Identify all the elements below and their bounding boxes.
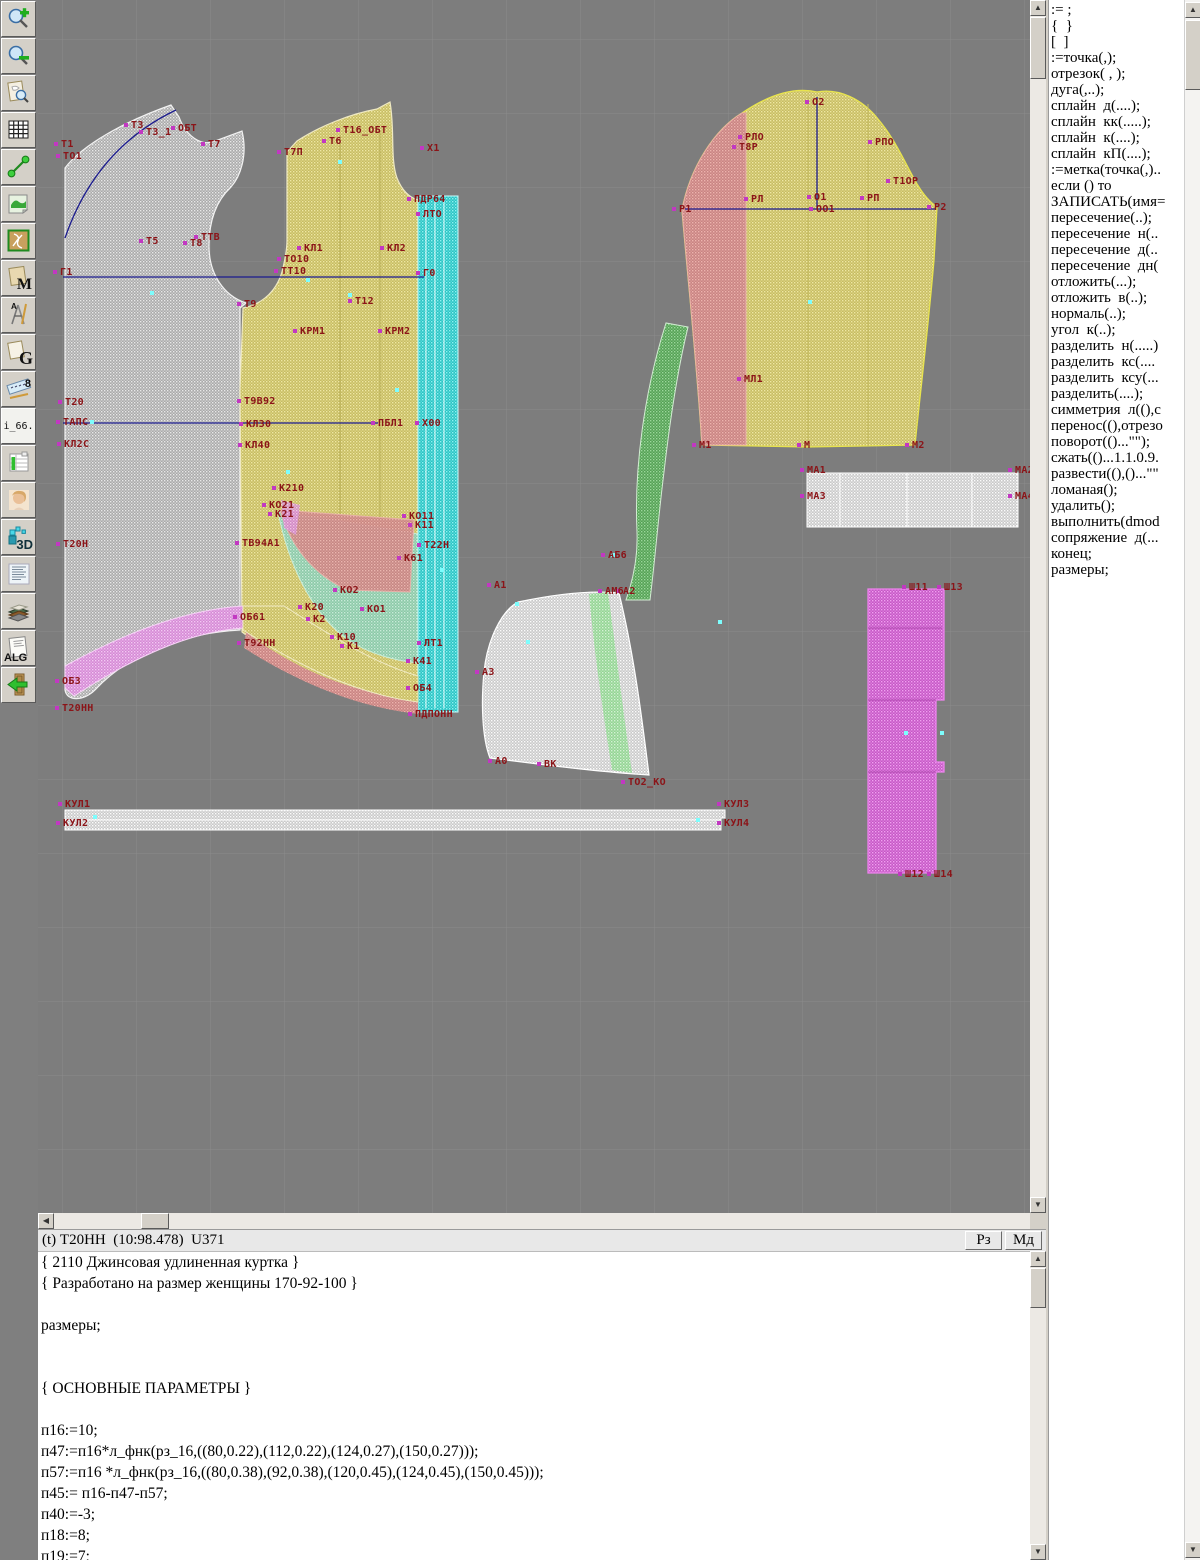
canvas-hscrollbar[interactable]: ◀	[38, 1213, 1030, 1229]
canvas-label: Ш14	[934, 869, 953, 880]
canvas-label: КУЛ3	[724, 799, 749, 810]
canvas-label: К21	[275, 509, 294, 520]
command-item[interactable]: := ;	[1051, 2, 1183, 18]
point-marker	[378, 329, 382, 333]
snap-marker	[904, 731, 908, 735]
canvas-label: К1	[347, 641, 360, 652]
canvas-label: ТАПС	[63, 417, 88, 428]
command-item[interactable]: развести((),()...""	[1051, 466, 1183, 482]
point-marker	[139, 239, 143, 243]
zoom-in-button[interactable]	[1, 1, 36, 37]
command-item[interactable]: сплайн д(....);	[1051, 98, 1183, 114]
point-marker	[268, 512, 272, 516]
point-marker	[860, 196, 864, 200]
canvas-label: ВК	[544, 759, 557, 770]
editor-line: п40:=-3;	[38, 1504, 1030, 1525]
text-list-button[interactable]	[1, 556, 36, 592]
point-marker	[56, 821, 60, 825]
point-marker	[407, 197, 411, 201]
status-text: (t) Т20НН (10:98.478) U371	[42, 1232, 224, 1249]
canvas-label: Р2	[934, 202, 947, 213]
point-marker	[537, 762, 541, 766]
point-marker	[868, 140, 872, 144]
canvas-label: КУЛ1	[65, 799, 90, 810]
point-marker	[55, 679, 59, 683]
point-marker	[408, 712, 412, 716]
command-item[interactable]: удалить();	[1051, 498, 1183, 514]
scroll-left-button[interactable]: ◀	[38, 1213, 54, 1229]
canvas-label: Т7П	[284, 147, 303, 158]
canvas-label: ЛТ1	[424, 638, 443, 649]
point-marker	[800, 494, 804, 498]
canvas-label: Т9В92	[244, 396, 276, 407]
command-item[interactable]: размеры;	[1051, 562, 1183, 578]
command-item[interactable]: пересечение н(..	[1051, 226, 1183, 242]
point-marker	[124, 123, 128, 127]
canvas-label: РЛ	[751, 194, 764, 205]
snap-marker	[93, 815, 97, 819]
point-marker	[397, 556, 401, 560]
point-marker	[371, 421, 375, 425]
canvas-label: РП	[867, 193, 880, 204]
point-marker	[800, 468, 804, 472]
g-document-button[interactable]: G	[1, 334, 36, 370]
editor-line: размеры;	[38, 1315, 1030, 1336]
command-item[interactable]: ломаная();	[1051, 482, 1183, 498]
snap-marker	[150, 291, 154, 295]
toolbar: M A G 8 i_66. 3D	[0, 0, 38, 703]
editor-line	[38, 1294, 1030, 1315]
canvas-label: Х1	[427, 143, 440, 154]
canvas-label: Т9	[244, 299, 257, 310]
point-marker	[406, 686, 410, 690]
point-marker	[886, 179, 890, 183]
canvas-hscroll-thumb[interactable]	[141, 1213, 169, 1229]
canvas-label: ОО1	[816, 204, 835, 215]
command-item[interactable]: сплайн кк(.....);	[1051, 114, 1183, 130]
canvas-label: Ш12	[905, 869, 924, 880]
command-item[interactable]: пересечение дн(	[1051, 258, 1183, 274]
point-marker	[306, 617, 310, 621]
command-item[interactable]: сжать(()...1.1.0.9.	[1051, 450, 1183, 466]
image-button[interactable]	[1, 186, 36, 222]
point-marker	[262, 503, 266, 507]
m-letter: M	[17, 276, 32, 294]
command-item[interactable]: { }	[1051, 18, 1183, 34]
editor-scroll-down-button[interactable]: ▼	[1030, 1544, 1046, 1560]
point-marker	[54, 142, 58, 146]
snap-marker	[395, 388, 399, 392]
i66-label: i_66.	[3, 421, 33, 432]
point-marker	[293, 329, 297, 333]
canvas-label: К11	[415, 520, 434, 531]
canvas-label: Т12	[355, 296, 374, 307]
canvas-label: ОБ61	[240, 612, 265, 623]
editor-line: { 2110 Джинсовая удлиненная куртка }	[38, 1252, 1030, 1273]
command-item[interactable]: перенос((),отрезо	[1051, 418, 1183, 434]
point-marker	[717, 802, 721, 806]
canvas-label: Т20	[65, 397, 84, 408]
point-marker	[417, 641, 421, 645]
alg-button[interactable]: ALG	[1, 630, 36, 666]
point-marker	[598, 589, 602, 593]
point-marker	[937, 585, 941, 589]
md-button[interactable]: Мд	[1005, 1231, 1042, 1250]
command-item[interactable]: разделить кс(....	[1051, 354, 1183, 370]
snap-marker	[440, 568, 444, 572]
canvas-label: Т22Н	[424, 540, 449, 551]
command-item[interactable]: разделить(....);	[1051, 386, 1183, 402]
threed-button[interactable]: 3D	[1, 519, 36, 555]
portrait-button[interactable]	[1, 482, 36, 518]
editor-line: { ОСНОВНЫЕ ПАРАМЕТРЫ }	[38, 1378, 1030, 1399]
ruler-button[interactable]: 8	[1, 371, 36, 407]
threed-label: 3D	[16, 537, 33, 552]
panel-scroll-down-button[interactable]: ▼	[1185, 1542, 1200, 1558]
canvas-label: КУЛ2	[63, 818, 88, 829]
a-letter: A	[11, 302, 17, 311]
point-marker	[488, 759, 492, 763]
snap-marker	[515, 602, 519, 606]
cuff-band[interactable]	[807, 473, 1018, 527]
point-marker	[737, 377, 741, 381]
command-item[interactable]: разделить н(.....)	[1051, 338, 1183, 354]
canvas-label: Т16_ОБТ	[343, 125, 387, 136]
point-marker	[402, 514, 406, 518]
canvas-label: Т20НН	[62, 703, 94, 714]
canvas-label: КРМ1	[300, 326, 325, 337]
canvas-label: КРМ2	[385, 326, 410, 337]
point-marker	[487, 583, 491, 587]
point-marker	[732, 145, 736, 149]
point-marker	[797, 443, 801, 447]
command-item[interactable]: конец;	[1051, 546, 1183, 562]
point-marker	[233, 615, 237, 619]
point-marker	[58, 802, 62, 806]
point-marker	[621, 780, 625, 784]
point-marker	[905, 443, 909, 447]
point-marker	[322, 139, 326, 143]
point-marker	[360, 607, 364, 611]
snap-marker	[338, 160, 342, 164]
point-marker	[272, 486, 276, 490]
command-item[interactable]: если () то	[1051, 178, 1183, 194]
canvas-label: Ш11	[909, 582, 928, 593]
editor-line	[38, 1336, 1030, 1357]
command-item[interactable]: симметрия л((),с	[1051, 402, 1183, 418]
canvas-label: К41	[413, 656, 432, 667]
canvas-label: ЛТО	[423, 209, 442, 220]
canvas-label: МА1	[807, 465, 826, 476]
editor-vscroll-thumb[interactable]	[1030, 1268, 1046, 1308]
canvas-label: Т3_1	[146, 127, 171, 138]
snap-marker	[286, 470, 290, 474]
command-item[interactable]: сопряжение д(...	[1051, 530, 1183, 546]
point-marker	[237, 399, 241, 403]
command-item[interactable]: выполнить(dmod	[1051, 514, 1183, 530]
command-item[interactable]: :=метка(точка(,)..	[1051, 162, 1183, 178]
canvas-label: А3	[482, 667, 495, 678]
command-item[interactable]: угол к(..);	[1051, 322, 1183, 338]
point-marker	[1008, 494, 1012, 498]
point-marker	[805, 100, 809, 104]
point-marker	[53, 270, 57, 274]
point-marker	[171, 126, 175, 130]
canvas-label: АБ6	[608, 550, 627, 561]
point-marker	[417, 543, 421, 547]
canvas-label: К210	[279, 483, 304, 494]
point-marker	[55, 706, 59, 710]
eight-digit: 8	[25, 378, 31, 390]
command-item[interactable]: пересечение д(..	[1051, 242, 1183, 258]
canvas-label: КУЛ4	[724, 818, 749, 829]
canvas-label: ПДПОНН	[415, 709, 453, 720]
snap-marker	[526, 640, 530, 644]
canvas-label: М2	[912, 440, 925, 451]
zoom-out-button[interactable]	[1, 38, 36, 74]
point-marker	[420, 146, 424, 150]
drafting-button[interactable]: A	[1, 297, 36, 333]
canvas-vscrollbar[interactable]: ▲ ▼	[1030, 0, 1046, 1213]
point-marker	[692, 443, 696, 447]
point-marker	[416, 271, 420, 275]
editor-line: п16:=10;	[38, 1420, 1030, 1441]
point-marker	[380, 246, 384, 250]
scroll-down-button[interactable]: ▼	[1030, 1197, 1046, 1213]
point-marker	[348, 299, 352, 303]
canvas-label: МА2	[1015, 465, 1030, 476]
command-item[interactable]: дуга(,..);	[1051, 82, 1183, 98]
point-marker	[56, 542, 60, 546]
program-editor[interactable]: { 2110 Джинсовая удлиненная куртка }{ Ра…	[38, 1251, 1030, 1560]
point-marker	[601, 553, 605, 557]
command-item[interactable]: сплайн кП(....);	[1051, 146, 1183, 162]
editor-line	[38, 1399, 1030, 1420]
status-bar: (t) Т20НН (10:98.478) U371 Рз Мд	[38, 1229, 1046, 1252]
canvas-label: Т8Р	[739, 142, 758, 153]
point-marker	[56, 420, 60, 424]
point-marker	[807, 195, 811, 199]
canvas-label: Х00	[422, 418, 441, 429]
books-button[interactable]	[1, 593, 36, 629]
command-panel-scrollbar[interactable]: ▲ ▼	[1184, 0, 1200, 1560]
canvas-label: КЛ30	[246, 419, 271, 430]
point-marker	[237, 302, 241, 306]
canvas-label: ТО2_КО	[628, 777, 666, 788]
canvas-label: Т1	[61, 139, 74, 150]
canvas-label: Т92НН	[244, 638, 276, 649]
command-item[interactable]: сплайн к(....);	[1051, 130, 1183, 146]
point-marker	[336, 128, 340, 132]
point-marker	[1008, 468, 1012, 472]
canvas-label: К20	[305, 602, 324, 613]
point-marker	[416, 212, 420, 216]
exit-button[interactable]	[1, 667, 36, 703]
editor-scroll-up-button[interactable]: ▲	[1030, 1251, 1046, 1267]
rz-button[interactable]: Рз	[965, 1231, 1002, 1250]
canvas-label: КО1	[367, 604, 386, 615]
canvas-label: МА3	[807, 491, 826, 502]
point-marker	[744, 197, 748, 201]
point-marker	[277, 150, 281, 154]
point-marker	[406, 659, 410, 663]
command-item[interactable]: :=точка(,);	[1051, 50, 1183, 66]
point-marker	[898, 872, 902, 876]
canvas-label: Т1ОР	[893, 176, 918, 187]
snap-marker	[808, 300, 812, 304]
point-marker	[408, 523, 412, 527]
canvas-label: МЛ1	[744, 374, 763, 385]
g-letter: G	[19, 348, 33, 369]
alg-label: ALG	[4, 652, 27, 664]
canvas-label: КЛ40	[245, 440, 270, 451]
canvas-label: О1	[814, 192, 827, 203]
point-marker	[738, 135, 742, 139]
measure-button[interactable]	[1, 149, 36, 185]
canvas-label: ОБ4	[413, 683, 432, 694]
canvas-label: ТТВ	[201, 232, 220, 243]
canvas-label: А2	[623, 586, 636, 597]
editor-line: п57:=п16 *л_фнк(рз_16,((80,0.38),(92,0.3…	[38, 1462, 1030, 1483]
snap-marker	[306, 278, 310, 282]
point-marker	[333, 588, 337, 592]
editor-line: п47:=п16*л_фнк(рз_16,((80,0.22),(112,0.2…	[38, 1441, 1030, 1462]
point-marker	[297, 246, 301, 250]
point-marker	[475, 670, 479, 674]
command-panel: := ;{ }[ ]:=точка(,);отрезок( , );дуга(,…	[1048, 0, 1200, 1560]
snap-marker	[696, 818, 700, 822]
canvas-label: РПО	[875, 137, 894, 148]
point-marker	[237, 641, 241, 645]
canvas-label: О2	[812, 97, 825, 108]
editor-line	[38, 1357, 1030, 1378]
snap-marker	[940, 731, 944, 735]
point-marker	[927, 872, 931, 876]
point-marker	[809, 207, 813, 211]
canvas-label: Т7	[208, 139, 221, 150]
command-item[interactable]: разделить ксу(...	[1051, 370, 1183, 386]
snap-marker	[90, 420, 94, 424]
pattern-canvas[interactable]: Т1ТО1Т3Т3_1ОБТТ7Т5Т8ТТВГ1Т9Т7ПТ6Т16_ОБТХ…	[38, 0, 1030, 1213]
canvas-label: А1	[494, 580, 507, 591]
canvas-label: АМ6	[605, 586, 624, 597]
point-marker	[183, 241, 187, 245]
editor-line: п18:=8;	[38, 1525, 1030, 1546]
command-item[interactable]: отложить в(..);	[1051, 290, 1183, 306]
canvas-label: ТО1	[63, 151, 82, 162]
canvas-label: ТТ10	[281, 266, 306, 277]
canvas-label: Г0	[423, 268, 436, 279]
canvas-label: МА4	[1015, 491, 1030, 502]
canvas-label: ПДР64	[414, 194, 446, 205]
point-marker	[277, 257, 281, 261]
snap-marker	[348, 293, 352, 297]
scroll-up-button[interactable]: ▲	[1030, 0, 1046, 16]
canvas-label: К2	[313, 614, 326, 625]
editor-line: { Разработано на размер женщины 170-92-1…	[38, 1273, 1030, 1294]
command-item[interactable]: поворот(()..."");	[1051, 434, 1183, 450]
canvas-label: Г1	[60, 267, 73, 278]
editor-vscrollbar[interactable]: ▲ ▼	[1030, 1251, 1046, 1560]
scrollbar-corner	[1030, 1213, 1046, 1229]
point-marker	[415, 421, 419, 425]
command-item[interactable]: [ ]	[1051, 34, 1183, 50]
point-marker	[298, 605, 302, 609]
canvas-label: ТВ94А1	[242, 538, 280, 549]
point-marker	[57, 442, 61, 446]
canvas-label: М1	[699, 440, 712, 451]
canvas-label: Т20Н	[63, 539, 88, 550]
canvas-label: Т5	[146, 236, 159, 247]
snap-marker	[718, 620, 722, 624]
canvas-label: А0	[495, 756, 508, 767]
point-marker	[340, 644, 344, 648]
command-item[interactable]: пересечение(..);	[1051, 210, 1183, 226]
point-marker	[235, 541, 239, 545]
m-document-button[interactable]: M	[1, 260, 36, 296]
point-marker	[717, 821, 721, 825]
canvas-label: КЛ1	[304, 243, 323, 254]
editor-line: п19:=7;	[38, 1546, 1030, 1560]
command-list: := ;{ }[ ]:=точка(,);отрезок( , );дуга(,…	[1051, 2, 1183, 578]
point-marker	[56, 154, 60, 158]
canvas-label: Р1	[679, 204, 692, 215]
canvas-label: М	[804, 440, 810, 451]
canvas-label: Т3	[131, 120, 144, 131]
canvas-label: ПБЛ1	[378, 418, 403, 429]
panel-scroll-up-button[interactable]: ▲	[1185, 2, 1200, 18]
canvas-label: ОБ3	[62, 676, 81, 687]
canvas-label: КО2	[340, 585, 359, 596]
command-item[interactable]: отложить(...);	[1051, 274, 1183, 290]
panel-vscroll-thumb[interactable]	[1185, 20, 1200, 90]
canvas-label: КЛ2	[387, 243, 406, 254]
point-marker	[274, 269, 278, 273]
point-marker	[330, 635, 334, 639]
command-item[interactable]: нормаль(..);	[1051, 306, 1183, 322]
command-item[interactable]: отрезок( , );	[1051, 66, 1183, 82]
canvas-label: ТО10	[284, 254, 309, 265]
grid-button[interactable]	[1, 112, 36, 148]
canvas-label: ОБТ	[178, 123, 197, 134]
command-item[interactable]: ЗАПИСАТЬ(имя=	[1051, 194, 1183, 210]
canvas-label: Т6	[329, 136, 342, 147]
point-marker	[672, 207, 676, 211]
pattern-cad-window: M A G 8 i_66. 3D	[0, 0, 1200, 1560]
canvas-label: КЛ2С	[64, 439, 89, 450]
editor-line: п45:= п16-п47-п57;	[38, 1483, 1030, 1504]
point-marker	[58, 400, 62, 404]
canvas-label: К61	[404, 553, 423, 564]
preview-button[interactable]	[1, 75, 36, 111]
point-marker	[201, 142, 205, 146]
table-chart-button[interactable]	[1, 445, 36, 481]
point-marker	[239, 422, 243, 426]
canvas-vscroll-thumb[interactable]	[1030, 17, 1046, 79]
point-marker	[902, 585, 906, 589]
point-marker	[238, 443, 242, 447]
i66-button[interactable]: i_66.	[1, 408, 36, 444]
pattern-frame-button[interactable]	[1, 223, 36, 259]
point-marker	[927, 205, 931, 209]
canvas-label: Ш13	[944, 582, 963, 593]
